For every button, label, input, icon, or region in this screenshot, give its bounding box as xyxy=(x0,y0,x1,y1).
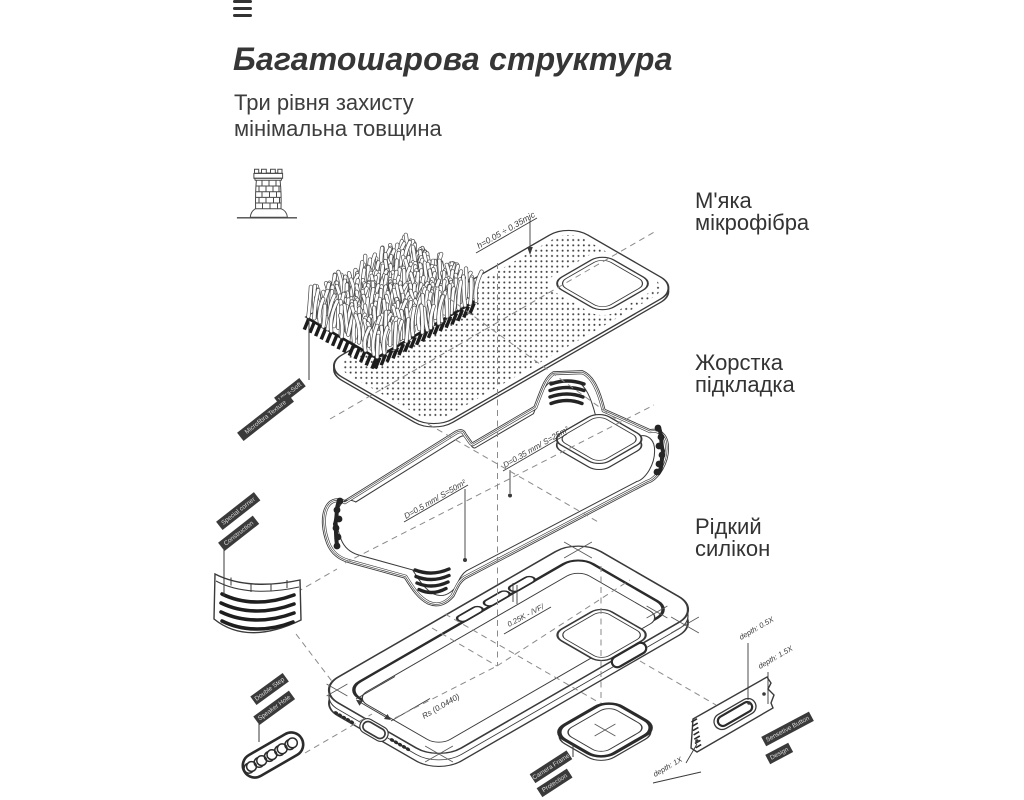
svg-text:h=0.05 ÷ 0.35mic: h=0.05 ÷ 0.35mic xyxy=(475,209,537,251)
svg-text:depth: 0.5X: depth: 0.5X xyxy=(738,614,777,641)
svg-text:Sensetive Button: Sensetive Button xyxy=(765,715,811,744)
svg-text:depth: 1.5X: depth: 1.5X xyxy=(757,643,796,670)
svg-text:Microfibra Texture: Microfibra Texture xyxy=(244,399,289,436)
svg-text:depth: 1X: depth: 1X xyxy=(652,754,685,778)
